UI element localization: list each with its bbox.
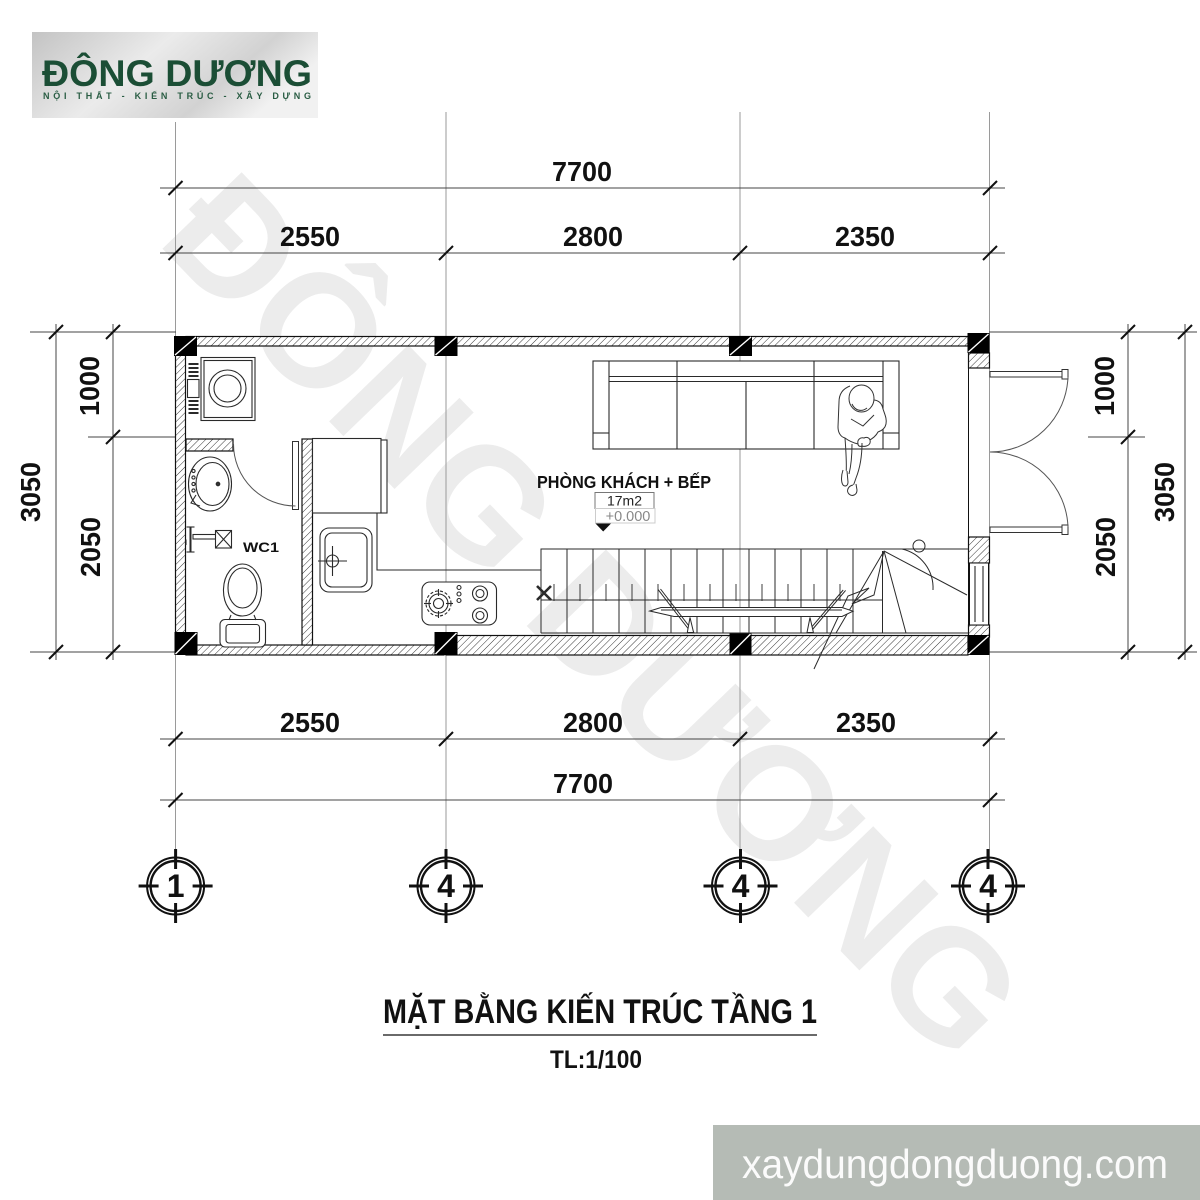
svg-text:2550: 2550 <box>280 221 340 252</box>
svg-text:ĐÔNG DƯƠNG: ĐÔNG DƯƠNG <box>42 52 312 94</box>
svg-text:+0.000: +0.000 <box>606 509 651 525</box>
svg-text:4: 4 <box>979 868 997 904</box>
svg-text:2800: 2800 <box>563 221 623 252</box>
svg-text:2350: 2350 <box>836 707 896 738</box>
svg-text:1000: 1000 <box>1089 356 1120 416</box>
svg-text:MẶT BẰNG KIẾN TRÚC TẦNG 1: MẶT BẰNG KIẾN TRÚC TẦNG 1 <box>383 993 817 1031</box>
svg-text:4: 4 <box>437 868 455 904</box>
svg-text:WC1: WC1 <box>243 539 279 555</box>
svg-text:2800: 2800 <box>563 707 623 738</box>
svg-text:TL:1/100: TL:1/100 <box>550 1046 642 1074</box>
svg-text:7700: 7700 <box>552 156 612 187</box>
svg-text:7700: 7700 <box>553 768 613 799</box>
svg-text:3050: 3050 <box>1149 462 1180 522</box>
svg-text:xaydungdongduong.com: xaydungdongduong.com <box>742 1141 1168 1187</box>
svg-text:17m2: 17m2 <box>607 493 642 509</box>
svg-text:4: 4 <box>732 868 750 904</box>
svg-text:2550: 2550 <box>280 707 340 738</box>
svg-text:1: 1 <box>167 868 185 904</box>
svg-text:2050: 2050 <box>1090 517 1121 577</box>
svg-text:2050: 2050 <box>75 517 106 577</box>
svg-text:PHÒNG KHÁCH + BẾP: PHÒNG KHÁCH + BẾP <box>537 471 711 492</box>
svg-text:2350: 2350 <box>835 221 895 252</box>
svg-text:3050: 3050 <box>15 462 46 522</box>
svg-text:1000: 1000 <box>74 356 105 416</box>
